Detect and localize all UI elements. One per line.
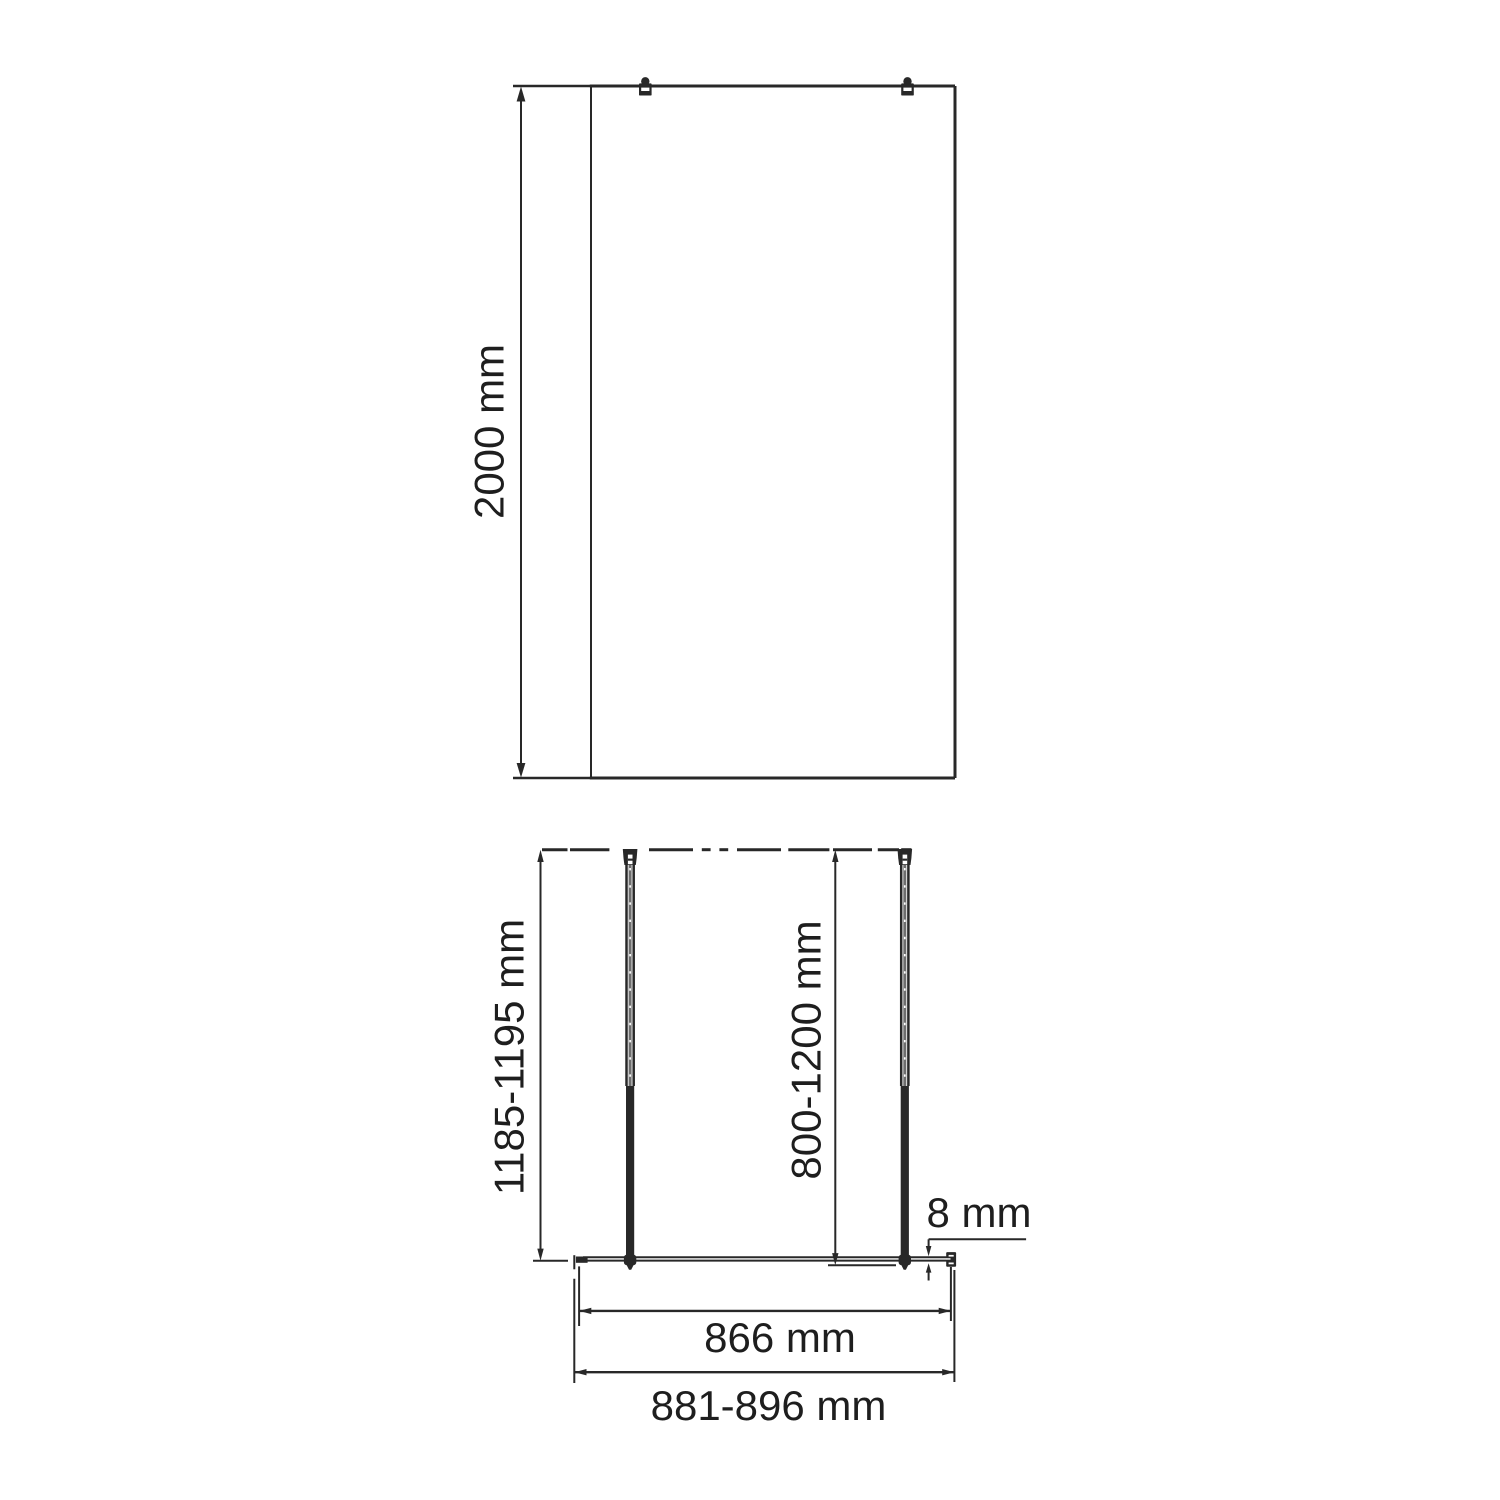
svg-text:8 mm: 8 mm	[927, 1189, 1032, 1236]
svg-text:800-1200 mm: 800-1200 mm	[783, 920, 830, 1179]
svg-text:881-896 mm: 881-896 mm	[651, 1382, 887, 1429]
svg-text:866 mm: 866 mm	[704, 1314, 856, 1361]
svg-text:1185-1195 mm: 1185-1195 mm	[485, 919, 532, 1195]
svg-text:2000 mm: 2000 mm	[466, 344, 513, 519]
